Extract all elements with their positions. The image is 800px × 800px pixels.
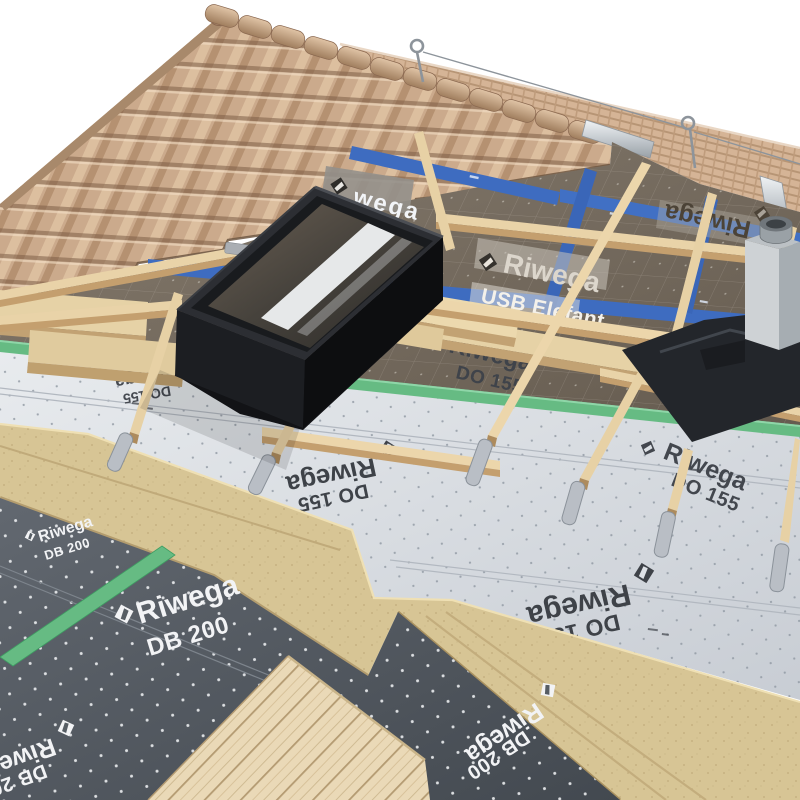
chimney-face-left xyxy=(745,240,779,350)
chimney-face-right xyxy=(779,242,800,350)
roof-system-cutaway-illustration: wega Riwega USB Elefant Riwega Riwega DO… xyxy=(0,0,800,800)
chimney-flue-hole xyxy=(766,220,786,229)
